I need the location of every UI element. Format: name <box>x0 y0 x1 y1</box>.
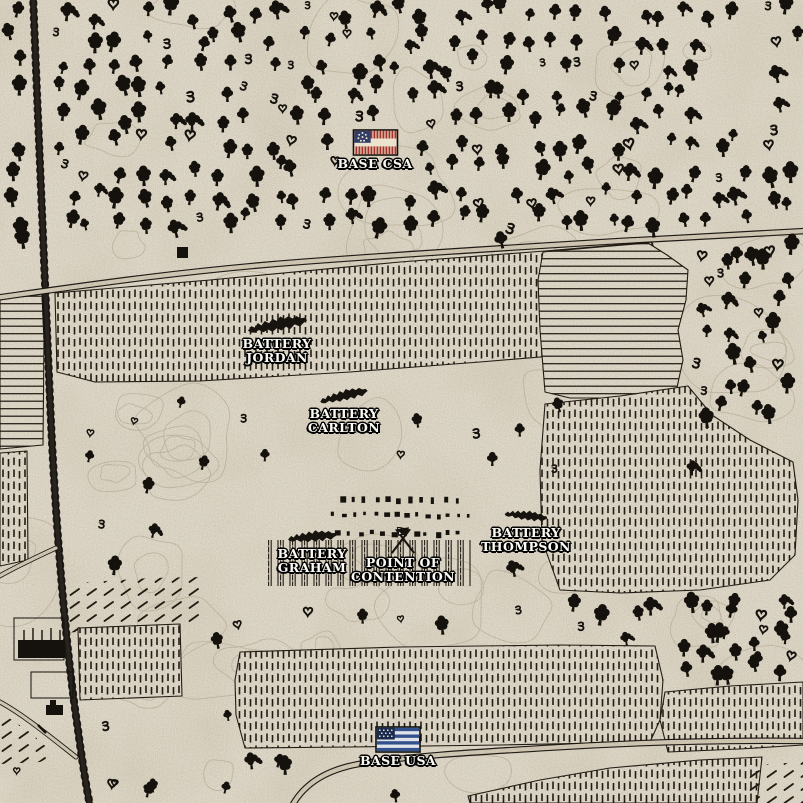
marker-label: BASE USA <box>360 754 436 768</box>
csa-flag-icon <box>352 129 398 156</box>
marker-label: JORDAN <box>246 351 308 365</box>
battery-icon <box>282 526 341 548</box>
marker-battery-carlton[interactable]: BATTERY CARLTON <box>308 386 380 434</box>
marker-label: GRAHAM <box>278 561 347 575</box>
marker-base-csa[interactable]: BASE CSA <box>337 129 412 171</box>
battle-map: BASE CSA BATTERY JORDAN BATTERY CARLTON … <box>0 0 803 803</box>
marker-point-of-contention[interactable]: POINT OF CONTENTION <box>351 527 455 583</box>
marker-base-usa[interactable]: BASE USA <box>360 726 436 768</box>
marker-label: CONTENTION <box>351 570 455 584</box>
marker-battery-graham[interactable]: BATTERY GRAHAM <box>278 528 347 574</box>
terrain-layer <box>0 0 803 803</box>
marker-label: CARLTON <box>308 421 380 435</box>
marker-label: THOMPSON <box>481 540 571 554</box>
marker-battery-thompson[interactable]: BATTERY THOMPSON <box>481 507 571 553</box>
marker-label: BATTERY <box>278 547 347 561</box>
marker-label: BASE CSA <box>337 157 412 171</box>
usa-flag-icon <box>375 726 421 753</box>
marker-battery-jordan[interactable]: BATTERY JORDAN <box>243 314 312 364</box>
marker-label: BATTERY <box>492 526 561 540</box>
crossed-flags-icon <box>385 527 421 555</box>
marker-label: POINT OF <box>366 556 440 570</box>
